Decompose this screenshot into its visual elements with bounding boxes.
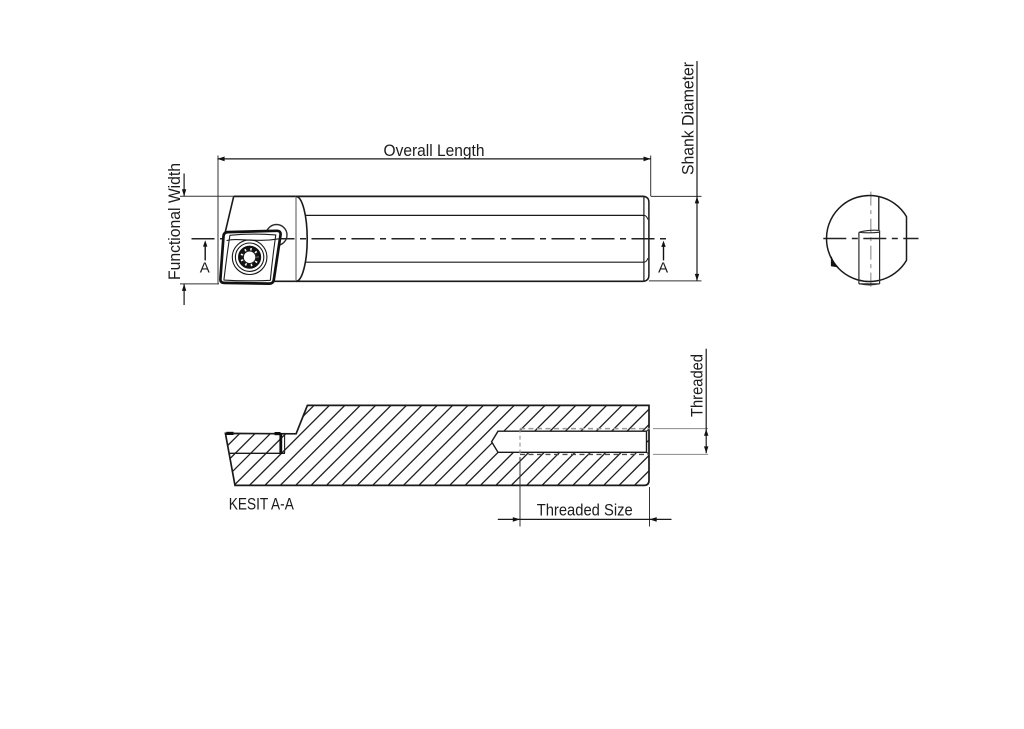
svg-text:Overall Length: Overall Length [384,141,485,160]
svg-text:Threaded: Threaded [688,354,707,417]
svg-text:A: A [200,260,210,277]
svg-text:Shank Diameter: Shank Diameter [679,62,698,175]
svg-text:Threaded Size: Threaded Size [537,500,633,519]
svg-text:A: A [658,260,668,277]
svg-text:Functional Width: Functional Width [165,163,184,280]
svg-text:KESIT A-A: KESIT A-A [229,495,294,513]
